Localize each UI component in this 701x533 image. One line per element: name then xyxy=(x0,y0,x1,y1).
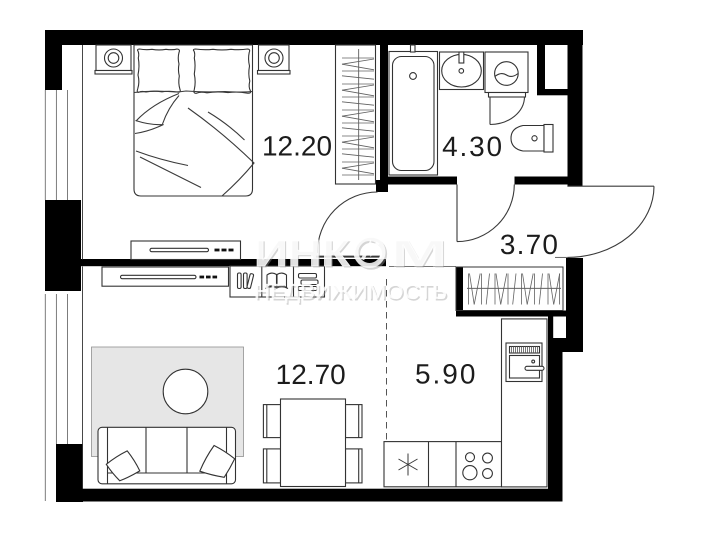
svg-text:12.70: 12.70 xyxy=(276,359,346,390)
svg-text:М: М xyxy=(390,233,447,275)
svg-text:4.30: 4.30 xyxy=(442,131,504,162)
svg-text:НЕДВИЖИМОСТЬ: НЕДВИЖИМОСТЬ xyxy=(254,281,447,304)
svg-text:5.90: 5.90 xyxy=(415,359,478,390)
svg-text:ИНК: ИНК xyxy=(254,233,351,275)
svg-text:12.20: 12.20 xyxy=(262,130,332,161)
svg-text:3.70: 3.70 xyxy=(500,229,559,260)
